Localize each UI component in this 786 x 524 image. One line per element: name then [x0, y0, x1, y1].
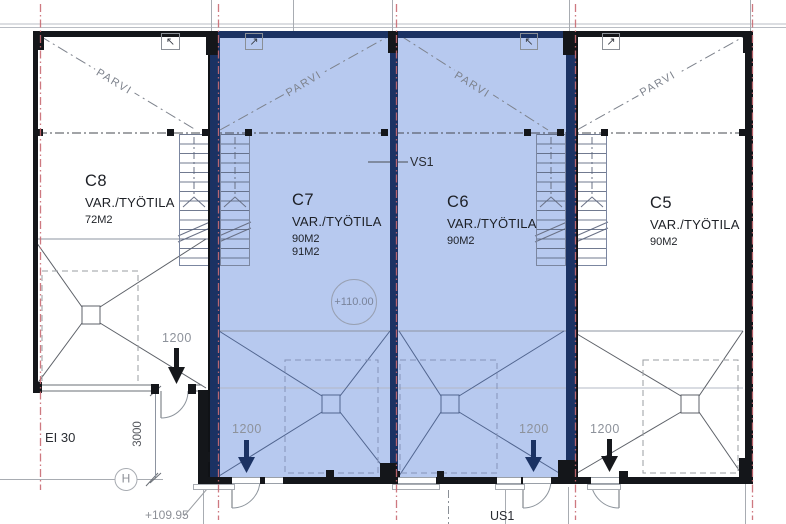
- dimension-3000: 3000: [132, 421, 144, 447]
- stair-c7: [220, 134, 250, 266]
- wall-top-c5: [571, 31, 753, 37]
- door-threshold: [392, 484, 440, 490]
- door-jamb: [188, 384, 196, 394]
- mezzanine-label: PARVI: [635, 67, 680, 100]
- door-threshold: [587, 484, 621, 490]
- door-jamb: [619, 471, 628, 480]
- floor-level-label: +110.00: [334, 296, 373, 308]
- unit-use: VAR./TYÖTILA: [85, 195, 175, 210]
- arrow-ne-icon: ↗: [606, 35, 615, 48]
- wall-left: [33, 31, 38, 390]
- unit-label-c5: C5 VAR./TYÖTILA 90M2: [650, 194, 740, 249]
- roof-hatch-box: ↗: [245, 33, 263, 50]
- column-post: [739, 129, 746, 136]
- mezzanine-label: PARVI: [91, 65, 136, 99]
- door-threshold: [495, 484, 525, 490]
- unit-label-c6: C6 VAR./TYÖTILA 90M2: [447, 193, 537, 248]
- unit-area: 91M2: [292, 246, 382, 259]
- door-opening: [232, 477, 260, 484]
- stair-c5: [577, 134, 607, 266]
- wall-party-c6-c5: [566, 31, 578, 484]
- column-post: [245, 129, 252, 136]
- unit-use: VAR./TYÖTILA: [650, 217, 740, 232]
- column-post: [601, 129, 608, 136]
- wall-block: [743, 31, 753, 53]
- c8-rear-facade: [38, 385, 202, 391]
- roof-hatch-box: ↗: [602, 33, 620, 50]
- unit-area: 90M2: [292, 233, 382, 246]
- wall-block: [388, 31, 398, 53]
- wall-party-c7-c6: [390, 31, 398, 484]
- arrow-ne-icon: ↗: [249, 35, 258, 48]
- dimension-1200: 1200: [519, 422, 549, 436]
- unit-label-c8: C8 VAR./TYÖTILA 72M2: [85, 172, 175, 227]
- stair-c8: [179, 134, 209, 266]
- arrow-nw-icon: ↖: [166, 35, 175, 48]
- wall-tag-vs1: VS1: [410, 155, 434, 169]
- unit-use: VAR./TYÖTILA: [447, 216, 537, 231]
- dimension-1200: 1200: [232, 422, 262, 436]
- door-opening: [523, 477, 551, 484]
- column-post: [167, 129, 174, 136]
- wall-block: [739, 458, 753, 484]
- fire-rating-label: EI 30: [45, 430, 75, 445]
- unit-area: 90M2: [447, 235, 537, 248]
- roof-hatch-box: ↖: [161, 33, 180, 50]
- column-post: [36, 129, 43, 136]
- column-post: [557, 129, 564, 136]
- wall-vestibule: [198, 390, 208, 477]
- window-opening: [265, 477, 283, 484]
- unit-area: 90M2: [650, 236, 740, 249]
- wall-block: [33, 31, 44, 50]
- door-opening: [591, 477, 619, 484]
- unit-name: C7: [292, 191, 382, 210]
- vestibule-dimension-line: [150, 386, 161, 483]
- column-post: [202, 129, 209, 136]
- wall-right: [745, 31, 753, 484]
- unit-use: VAR./TYÖTILA: [292, 214, 382, 229]
- column-post: [381, 129, 388, 136]
- wall-top-c8: [33, 31, 211, 37]
- wall-block: [33, 382, 42, 393]
- wall-block: [198, 452, 210, 462]
- door-jamb: [437, 471, 444, 478]
- door-jamb: [151, 384, 159, 394]
- window-opening: [497, 477, 521, 484]
- roof-hatch-box: ↖: [520, 33, 538, 50]
- wall-tag-us1: US1: [490, 509, 514, 523]
- door-threshold: [193, 484, 235, 490]
- floor-plan: ↖ ↗ ↖ ↗ C8 VAR./TYÖTILA 72M2 C7 VAR./TYÖ…: [0, 0, 786, 524]
- door-jamb: [326, 470, 334, 478]
- dimension-1200: 1200: [162, 331, 192, 345]
- arrow-nw-icon: ↖: [524, 35, 533, 48]
- column-post: [524, 129, 531, 136]
- unit-name: C5: [650, 194, 740, 213]
- highlight-region-c7-c6: [210, 31, 567, 484]
- unit-area: 72M2: [85, 214, 175, 227]
- wall-party-c8-c7: [208, 31, 220, 484]
- top-dimension-lines: [0, 24, 786, 28]
- window-opening: [398, 477, 436, 484]
- grid-row-label: H: [122, 472, 131, 486]
- wall-block: [563, 31, 576, 55]
- unit-name: C8: [85, 172, 175, 191]
- ground-level-label: +109.95: [145, 508, 189, 522]
- dimension-1200: 1200: [590, 422, 620, 436]
- grid-row-h-line: [0, 469, 163, 491]
- unit-label-c7: C7 VAR./TYÖTILA 90M2 91M2: [292, 191, 382, 258]
- stair-c6: [536, 134, 566, 266]
- unit-name: C6: [447, 193, 537, 212]
- roof-plan-c5: [572, 331, 743, 476]
- wall-block: [206, 31, 218, 55]
- wall-block: [558, 460, 576, 484]
